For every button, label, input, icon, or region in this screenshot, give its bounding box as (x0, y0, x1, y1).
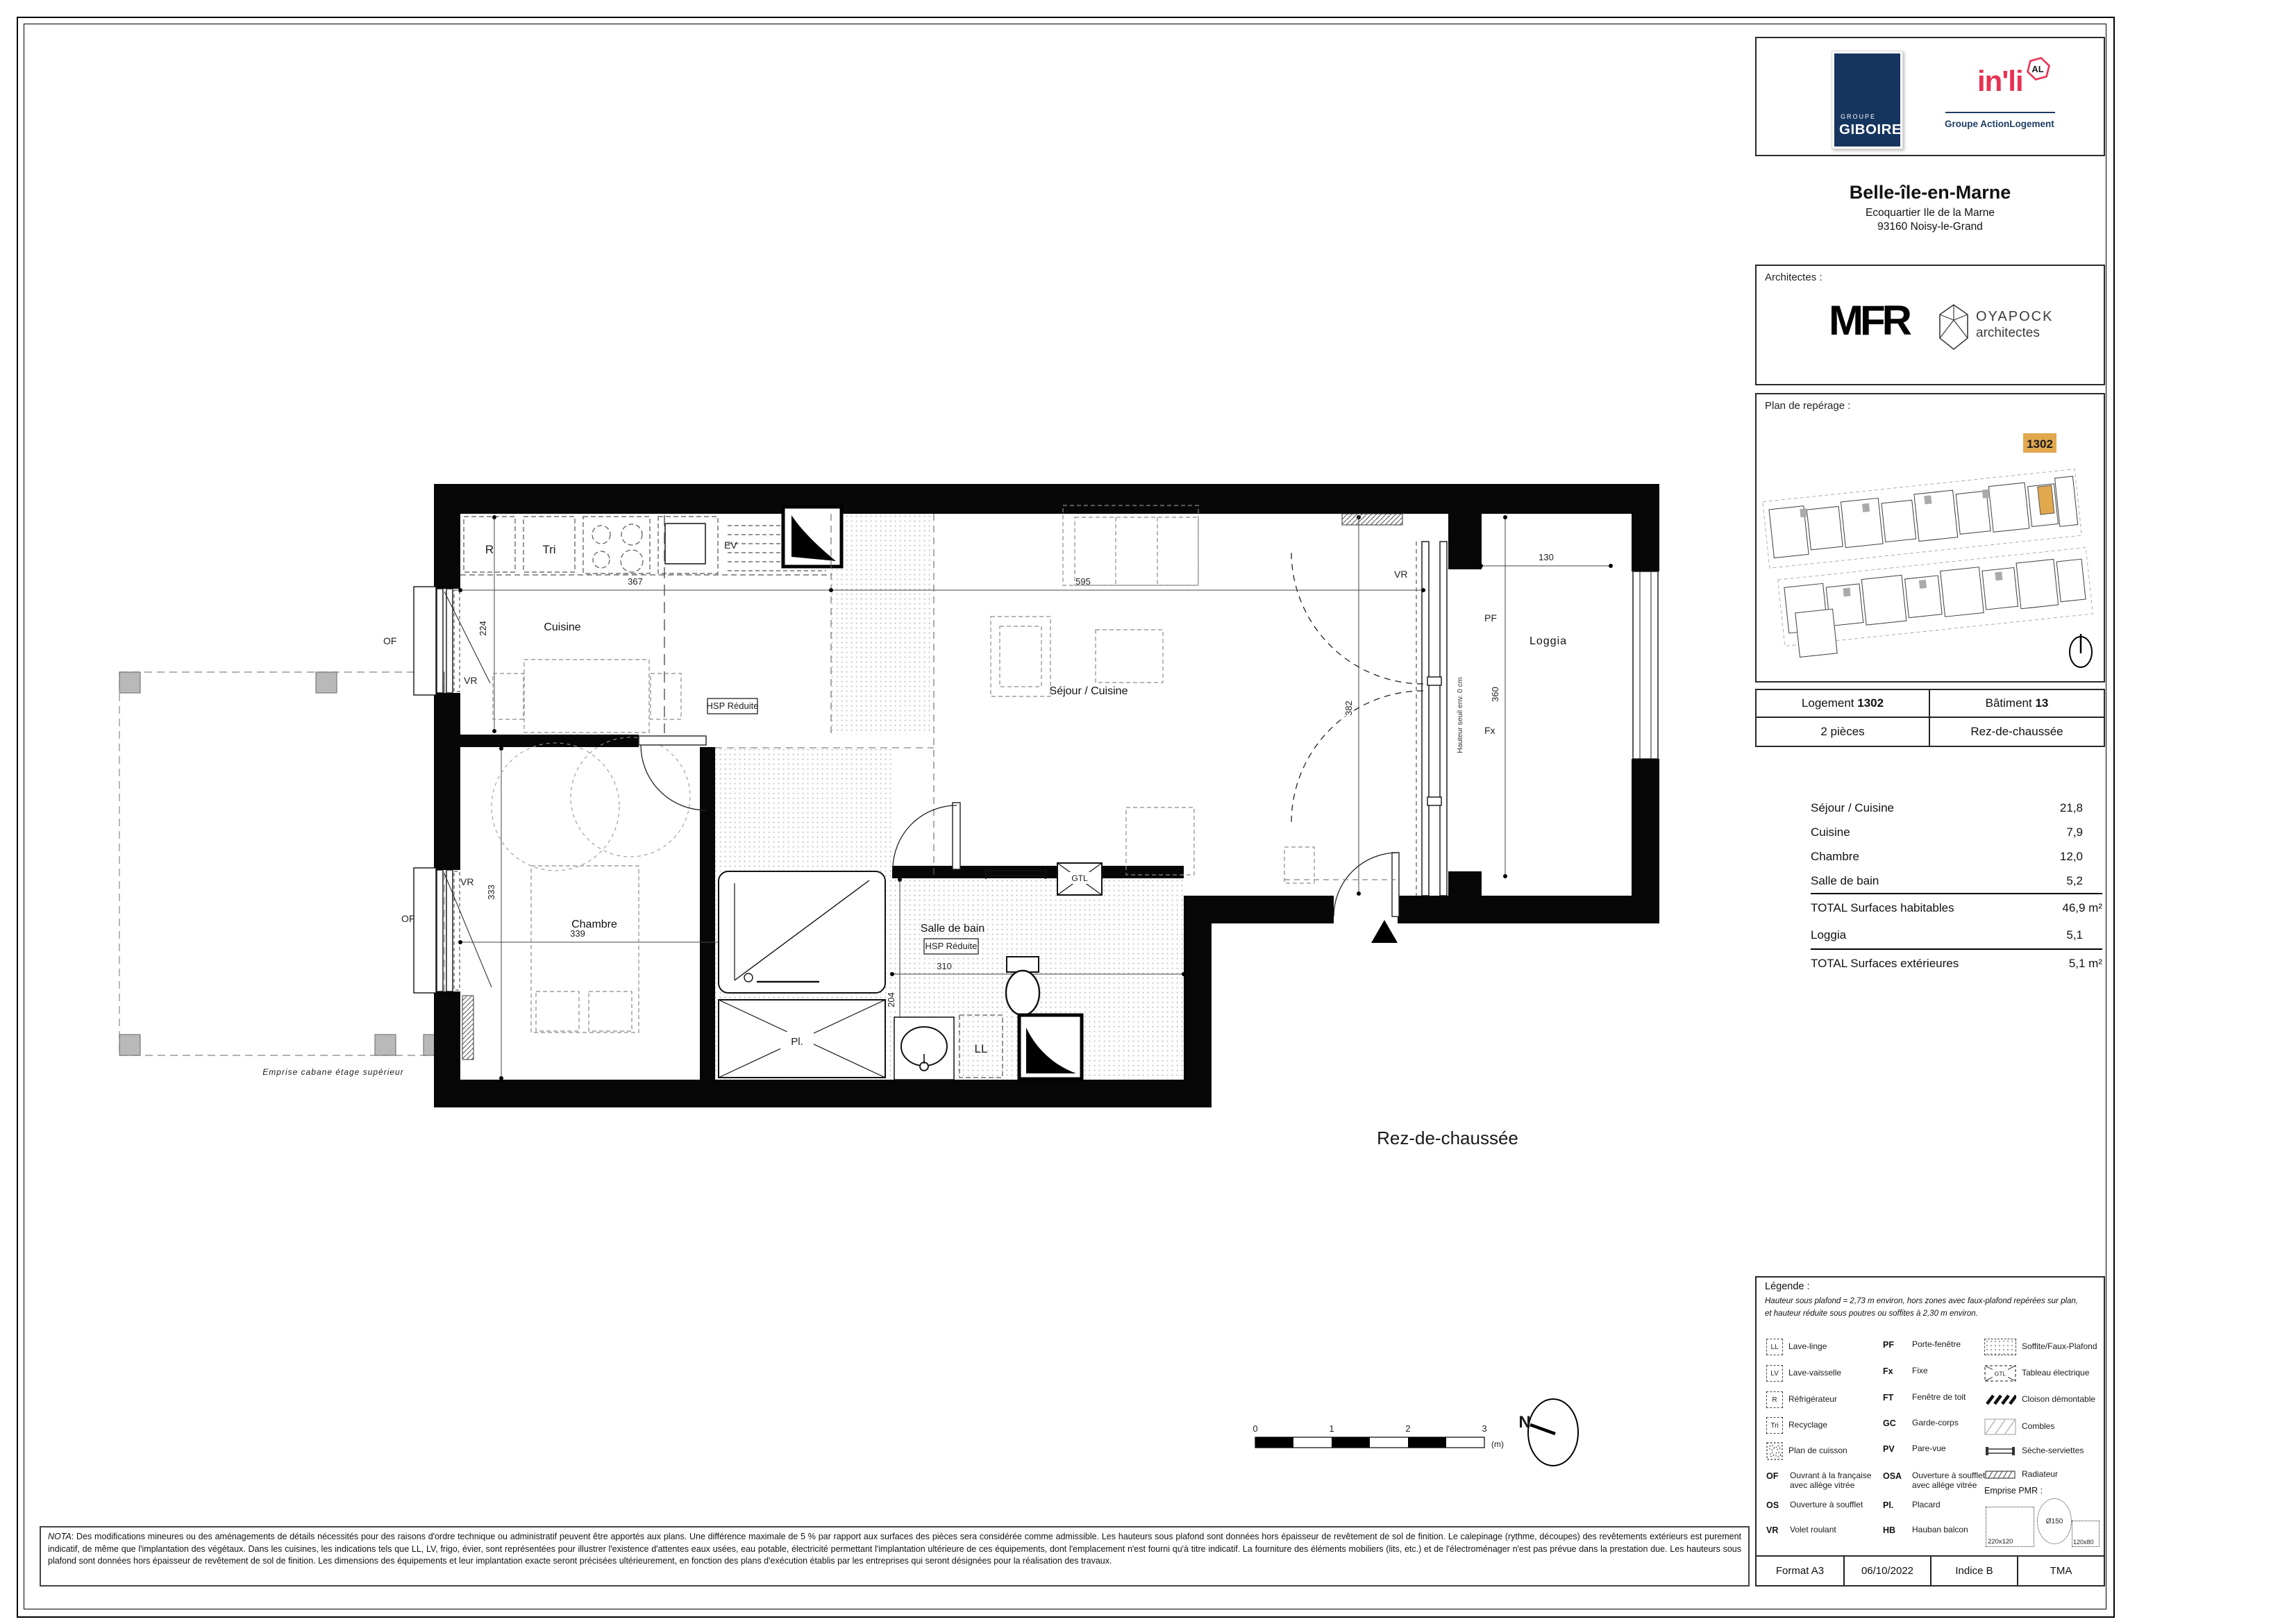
surface-value: 12,0 (2060, 850, 2102, 864)
post (375, 1035, 396, 1055)
legend-item: OSOuverture à soufflet (1766, 1500, 1875, 1510)
plan-de-cuisson-icon (1766, 1442, 1783, 1460)
placard-label: Pl. (791, 1036, 803, 1048)
bed (531, 866, 639, 1032)
legend-box: Légende : Hauteur sous plafond = 2,73 m … (1755, 1276, 2105, 1559)
svg-text:3: 3 (1482, 1423, 1486, 1434)
gtl-label: GTL (1071, 873, 1088, 883)
oyapock-name: OYAPOCK (1976, 309, 2053, 325)
scale-unit: (m) (1491, 1439, 1504, 1449)
chambre-items (462, 736, 706, 1060)
unit-table: Logement 1302 Bâtiment 13 2 pièces Rez-d… (1755, 689, 2105, 747)
combles-icon (1984, 1418, 2016, 1435)
surface-row: Loggia 5,1 (1811, 922, 2102, 948)
vr-abbr: VR (1766, 1525, 1784, 1535)
surface-label: Séjour / Cuisine (1811, 801, 1894, 815)
toilet-tank (1007, 957, 1039, 972)
svg-text:382: 382 (1343, 701, 1354, 716)
pmr-label: Emprise PMR : (1984, 1486, 2043, 1496)
legend-title: Légende : (1765, 1281, 1810, 1292)
surface-row: Chambre 12,0 (1811, 844, 2102, 869)
chair (651, 673, 681, 719)
type-cell: 2 pièces (1757, 718, 1930, 746)
compass-icon (2070, 634, 2092, 667)
shower (719, 871, 885, 993)
sejour-furniture (991, 505, 1314, 883)
reperage-box: Plan de repérage : 1302 (1755, 393, 2105, 683)
pmr-rect1-label: 220x120 (1988, 1538, 2013, 1546)
cloison-demontable-icon (1984, 1393, 2016, 1407)
logement-number: 1302 (1857, 696, 1884, 710)
surface-total-value: 5,1 m² (2069, 957, 2102, 971)
nota-text: : Des modifications mineures ou des amén… (48, 1532, 1741, 1566)
svg-text:GTL: GTL (1995, 1371, 2006, 1378)
oyapock-sub: architectes (1976, 326, 2040, 341)
architects-box: Architectes : MFR OYAPOCK architectes (1755, 265, 2105, 385)
fx-tag-loggia: Fx (1484, 725, 1495, 736)
legend-item: Plan de cuisson (1766, 1442, 1872, 1460)
door-leaf-sdb (953, 803, 960, 869)
svg-text:130: 130 (1539, 552, 1554, 562)
pmr-rect-120x80: 120x80 (2072, 1521, 2100, 1547)
tableau-electrique-icon: GTL (1984, 1365, 2016, 1382)
legend-note2: et hauteur réduite sous poutres ou soffi… (1765, 1309, 1978, 1318)
mfr-logo: MFR (1829, 296, 1909, 344)
sheet: { "branding": { "giboire": {"top": "GROU… (0, 0, 2296, 1624)
legend-item: Soffite/Faux-Plafond (1984, 1339, 2104, 1355)
niveau-label: Rez-de-chaussée (1970, 725, 2063, 739)
footer-tma: TMA (2017, 1557, 2104, 1585)
legend-item: Cloison démontable (1984, 1393, 2104, 1407)
niveau-cell: Rez-de-chaussée (1930, 718, 2104, 746)
radiator-sejour (1342, 514, 1402, 525)
surface-total-label: TOTAL Surfaces extérieures (1811, 957, 1959, 971)
post (119, 672, 140, 693)
type-label: 2 pièces (1820, 725, 1864, 739)
of-abbr: OF (1766, 1471, 1784, 1481)
legend-item: OSAOuverture à soufflet avec allège vitr… (1883, 1471, 1990, 1490)
soffite-icon (1984, 1339, 2016, 1355)
floor-plan: Emprise cabane étage supérieur (25, 25, 1752, 1526)
legend-item: RRéfrigérateur (1766, 1391, 1872, 1408)
legend-item: TriRecyclage (1766, 1417, 1872, 1434)
room-label-chambre: Chambre (571, 919, 617, 930)
legend-item: LVLave-vaisselle (1766, 1365, 1872, 1382)
window-chambre (414, 868, 492, 993)
sink-ev-label: EV (724, 539, 737, 551)
logement-cell: Logement 1302 (1757, 690, 1930, 718)
logos-box: GROUPE GIBOIRE in'li AL Groupe ActionLog… (1755, 37, 2105, 156)
entrance-arrow (1371, 920, 1398, 943)
giboire-groupe-label: GROUPE (1841, 113, 1876, 120)
svg-text:360: 360 (1490, 687, 1500, 702)
giboire-name-label: GIBOIRE (1839, 122, 1902, 138)
surface-label: Chambre (1811, 850, 1859, 864)
footer-format: Format A3 (1757, 1557, 1843, 1585)
lave-linge-icon: LL (1766, 1339, 1783, 1355)
os-abbr: OS (1766, 1500, 1784, 1510)
room-label-loggia: Loggia (1530, 635, 1567, 647)
pmr-circle-150: Ø150 (2037, 1498, 2072, 1544)
site-plan: 1302 (1757, 415, 2106, 683)
kitchen-counter: R Tri EV (460, 507, 841, 575)
vr-tag-sejour: VR (1394, 569, 1407, 580)
inli-divider (1945, 112, 2055, 113)
nota-box: NOTA: Des modifications mineures ou des … (40, 1526, 1750, 1587)
fridge-label: R (485, 543, 494, 556)
vr-tag-chambre: VR (460, 876, 474, 887)
toilet (1006, 971, 1039, 1015)
legend-item: Sèche-serviettes (1984, 1444, 2104, 1458)
batiment-number: 13 (2035, 696, 2048, 710)
door-leaf-chambre (639, 736, 706, 745)
ll-label: LL (975, 1042, 988, 1055)
surface-row: Séjour / Cuisine 21,8 (1811, 796, 2102, 820)
room-label-sejour: Séjour / Cuisine (1050, 685, 1128, 697)
unit-tag: 1302 (2027, 437, 2053, 451)
surface-total-value: 46,9 m² (2062, 901, 2102, 915)
surface-label: Loggia (1811, 928, 1846, 942)
surface-value: 5,1 (2066, 928, 2102, 942)
surface-label: Salle de bain (1811, 874, 1879, 888)
pmr-circle-label: Ø150 (2046, 1518, 2063, 1525)
radiator-chambre (462, 996, 474, 1060)
surface-value: 7,9 (2066, 826, 2102, 839)
project-title-block: Belle-île-en-Marne Ecoquartier Ile de la… (1755, 182, 2105, 234)
legend-item: FxFixe (1883, 1366, 1990, 1376)
cabinet (1126, 807, 1194, 875)
batiment-cell: Bâtiment 13 (1930, 690, 2104, 718)
svg-text:0: 0 (1252, 1423, 1257, 1434)
recycling-label: Tri (542, 543, 555, 556)
legend-item: Combles (1984, 1418, 2104, 1435)
svg-text:310: 310 (937, 961, 952, 971)
svg-text:2: 2 (1405, 1423, 1410, 1434)
pmr-rect2-label: 120x80 (2073, 1539, 2094, 1546)
batiment-label: Bâtiment (1986, 696, 2032, 710)
svg-text:333: 333 (486, 885, 496, 900)
chair (493, 673, 523, 719)
nota-label: NOTA (48, 1532, 72, 1541)
post (119, 1035, 140, 1055)
project-address1: Ecoquartier Ile de la Marne (1755, 206, 2105, 220)
legend-item: PVPare-vue (1883, 1444, 1990, 1454)
north-arrow: N (1518, 1399, 1578, 1466)
room-label-cuisine: Cuisine (544, 621, 580, 633)
surface-value: 21,8 (2060, 801, 2102, 815)
svg-text:AL: AL (2031, 64, 2043, 74)
surface-value: 5,2 (2066, 874, 2102, 888)
legend-item: Radiateur (1984, 1469, 2104, 1480)
legend-item: GCGarde-corps (1883, 1418, 1990, 1428)
cuisine-furniture (493, 660, 681, 733)
highlighted-unit (2038, 485, 2054, 514)
svg-text:204: 204 (886, 992, 896, 1007)
legend-item: VRVolet roulant (1766, 1525, 1875, 1535)
reperage-label: Plan de repérage : (1765, 400, 1850, 412)
legend-item: OFOuvrant à la française avec allège vit… (1766, 1471, 1875, 1490)
surface-total-row: TOTAL Surfaces extérieures 5,1 m² (1811, 948, 2102, 978)
coffee-table (1096, 630, 1163, 683)
upper-floor-footprint: Emprise cabane étage supérieur (119, 672, 444, 1077)
sink-icon (658, 517, 718, 574)
surface-row: Salle de bain 5,2 (1811, 869, 2102, 893)
inli-al-badge-icon: AL (2026, 56, 2051, 83)
pmr-circle (492, 743, 619, 871)
dining-table (524, 660, 649, 733)
svg-text:224: 224 (478, 621, 488, 636)
north-label: N (1518, 1413, 1530, 1432)
lave-vaisselle-icon: LV (1766, 1365, 1783, 1382)
vr-tag-cuisine: VR (464, 675, 477, 686)
svg-text:367: 367 (628, 576, 643, 587)
surface-total-label: TOTAL Surfaces habitables (1811, 901, 1954, 915)
post (316, 672, 337, 693)
inli-group-label: Groupe ActionLogement (1945, 119, 2054, 129)
faux-plafond-zones (715, 514, 1184, 1080)
footer-date: 06/10/2022 (1843, 1557, 1930, 1585)
legend-item: FTFenêtre de toit (1883, 1393, 1990, 1403)
entry-cabinet (1284, 847, 1314, 883)
surface-row: Cuisine 7,9 (1811, 820, 2102, 844)
giboire-logo: GROUPE GIBOIRE (1832, 51, 1903, 149)
door-leaf-entrance (1392, 853, 1399, 916)
of-tag-chambre: OF (401, 913, 414, 924)
surfaces-table: Séjour / Cuisine 21,8 Cuisine 7,9 Chambr… (1811, 796, 2102, 978)
legend-item: LLLave-linge (1766, 1339, 1872, 1355)
hsp-reduite-label-cuisine: HSP Réduite (707, 701, 759, 711)
room-label-sdb: Salle de bain (921, 923, 985, 935)
footer-indice: Indice B (1930, 1557, 2017, 1585)
seuil-note: Hauteur seuil env. 0 cm (1456, 677, 1464, 753)
recyclage-icon: Tri (1766, 1417, 1783, 1434)
inli-logo: in'li AL Groupe ActionLogement (1944, 52, 2076, 142)
window-cuisine (414, 587, 490, 695)
footer-strip: Format A3 06/10/2022 Indice B TMA (1755, 1555, 2105, 1587)
surface-total-row: TOTAL Surfaces habitables 46,9 m² (1811, 893, 2102, 922)
refrigerateur-icon: R (1766, 1391, 1783, 1408)
legend-item: HBHauban balcon (1883, 1525, 1990, 1535)
emprise-label: Emprise cabane étage supérieur (262, 1067, 403, 1077)
oyapock-icon (1938, 303, 1969, 351)
floor-label: Rez-de-chaussée (1377, 1128, 1518, 1148)
seche-serviettes-icon (1984, 1444, 2016, 1458)
architects-label: Architectes : (1765, 271, 1822, 283)
svg-text:1: 1 (1329, 1423, 1334, 1434)
radiateur-icon (1984, 1469, 2016, 1480)
pmr-rect-220x120: 220x120 (1986, 1507, 2034, 1547)
project-address2: 93160 Noisy-le-Grand (1755, 220, 2105, 234)
of-tag-cuisine: OF (383, 635, 396, 646)
cooktop-icon (583, 517, 650, 574)
loggia-railing (1633, 571, 1658, 759)
legend-item: Pl.Placard (1883, 1500, 1990, 1510)
pf-tag-loggia: PF (1484, 612, 1497, 623)
legend-item: PFPorte-fenêtre (1883, 1340, 1990, 1350)
hsp-reduite-label-sdb: HSP Réduite (925, 941, 978, 951)
project-title: Belle-île-en-Marne (1755, 182, 2105, 203)
inli-name: in'li (1977, 65, 2023, 98)
legend-note1: Hauteur sous plafond = 2,73 m environ, h… (1765, 1297, 2078, 1305)
legend-item: GTL Tableau électrique (1984, 1365, 2104, 1382)
logement-label: Logement (1802, 696, 1854, 710)
scale-bar: 0 1 2 3 (m) (1252, 1423, 1504, 1449)
pmr-circle (571, 737, 690, 857)
surface-label: Cuisine (1811, 826, 1850, 839)
window-sejour-loggia (1291, 542, 1447, 896)
